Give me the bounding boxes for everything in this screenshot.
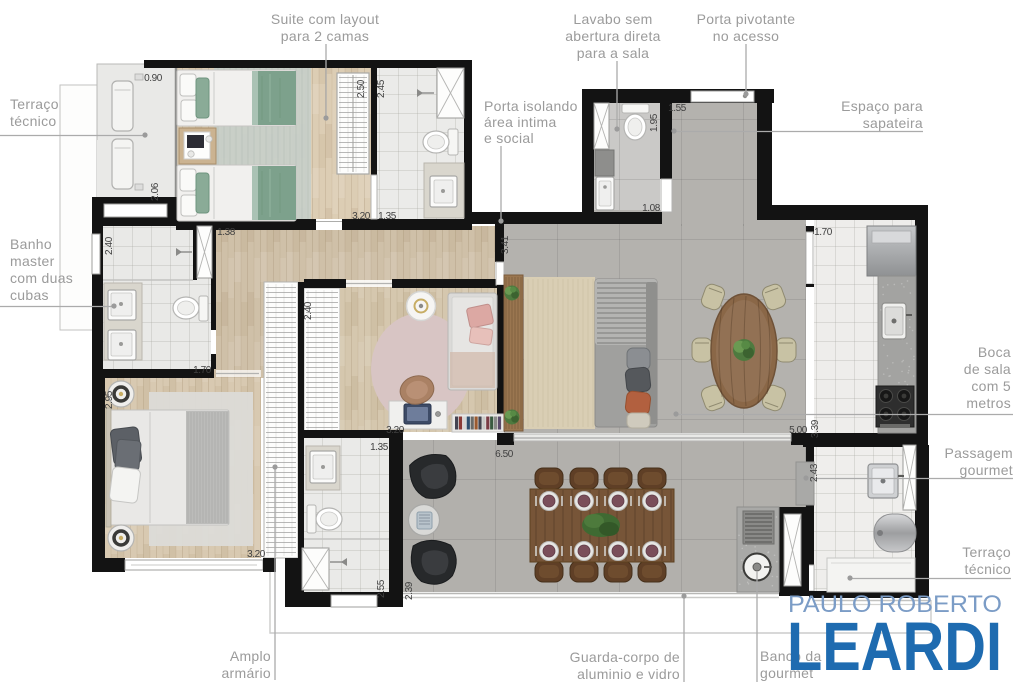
svg-text:com 5: com 5 bbox=[971, 378, 1011, 394]
svg-text:Amplo: Amplo bbox=[230, 648, 271, 664]
svg-text:2.45: 2.45 bbox=[376, 79, 387, 98]
svg-text:3.20: 3.20 bbox=[247, 549, 266, 560]
svg-text:2.55: 2.55 bbox=[376, 579, 387, 598]
svg-text:2.40: 2.40 bbox=[104, 236, 115, 255]
svg-text:aluminio e vidro: aluminio e vidro bbox=[577, 666, 680, 682]
svg-text:0.90: 0.90 bbox=[144, 73, 163, 84]
svg-text:3.39: 3.39 bbox=[810, 419, 821, 438]
svg-text:Espaço para: Espaço para bbox=[841, 98, 923, 114]
svg-text:2.95: 2.95 bbox=[104, 390, 115, 409]
svg-text:gourmet: gourmet bbox=[960, 462, 1013, 478]
svg-text:2.40: 2.40 bbox=[303, 301, 314, 320]
svg-text:e social: e social bbox=[484, 130, 534, 146]
svg-text:1.38: 1.38 bbox=[217, 227, 236, 238]
svg-text:2.43: 2.43 bbox=[809, 463, 820, 482]
svg-text:Boca: Boca bbox=[978, 344, 1011, 360]
svg-text:área intima: área intima bbox=[484, 114, 557, 130]
svg-text:1.08: 1.08 bbox=[642, 203, 661, 214]
svg-text:2.50: 2.50 bbox=[356, 79, 367, 98]
svg-text:sapateira: sapateira bbox=[863, 115, 923, 131]
svg-text:2.39: 2.39 bbox=[404, 581, 415, 600]
svg-text:1.70: 1.70 bbox=[814, 227, 833, 238]
svg-text:6.50: 6.50 bbox=[495, 449, 514, 460]
svg-text:2.06: 2.06 bbox=[150, 182, 161, 201]
svg-text:1.95: 1.95 bbox=[649, 113, 660, 132]
svg-text:1.70: 1.70 bbox=[193, 365, 212, 376]
svg-text:master: master bbox=[10, 253, 55, 269]
svg-text:Passagem: Passagem bbox=[944, 445, 1013, 461]
svg-text:5.00: 5.00 bbox=[789, 425, 808, 436]
svg-text:3.20: 3.20 bbox=[386, 425, 405, 436]
svg-text:Banho: Banho bbox=[10, 236, 52, 252]
svg-text:metros: metros bbox=[966, 395, 1011, 411]
svg-text:1.35: 1.35 bbox=[378, 211, 397, 222]
svg-text:com duas: com duas bbox=[10, 270, 73, 286]
svg-text:de sala: de sala bbox=[964, 361, 1011, 377]
svg-text:abertura direta: abertura direta bbox=[565, 28, 661, 44]
svg-text:Lavabo sem: Lavabo sem bbox=[573, 11, 652, 27]
svg-text:1.35: 1.35 bbox=[370, 442, 389, 453]
svg-text:técnico: técnico bbox=[965, 561, 1011, 577]
svg-text:LEARDI: LEARDI bbox=[787, 608, 1002, 685]
svg-text:armário: armário bbox=[221, 665, 271, 681]
svg-text:técnico: técnico bbox=[10, 113, 56, 129]
svg-text:cubas: cubas bbox=[10, 287, 49, 303]
svg-text:Terraço: Terraço bbox=[962, 544, 1011, 560]
svg-text:3.41: 3.41 bbox=[500, 235, 511, 254]
svg-text:Terraço: Terraço bbox=[10, 96, 59, 112]
svg-text:Guarda-corpo de: Guarda-corpo de bbox=[570, 649, 680, 665]
svg-text:3.20: 3.20 bbox=[352, 211, 371, 222]
svg-text:1.55: 1.55 bbox=[668, 103, 687, 114]
svg-text:Porta isolando: Porta isolando bbox=[484, 98, 578, 114]
svg-text:para a sala: para a sala bbox=[577, 45, 650, 61]
svg-text:Porta pivotante: Porta pivotante bbox=[697, 11, 796, 27]
svg-text:Suite com layout: Suite com layout bbox=[271, 11, 379, 27]
svg-text:no acesso: no acesso bbox=[713, 28, 780, 44]
svg-text:para 2 camas: para 2 camas bbox=[281, 28, 369, 44]
